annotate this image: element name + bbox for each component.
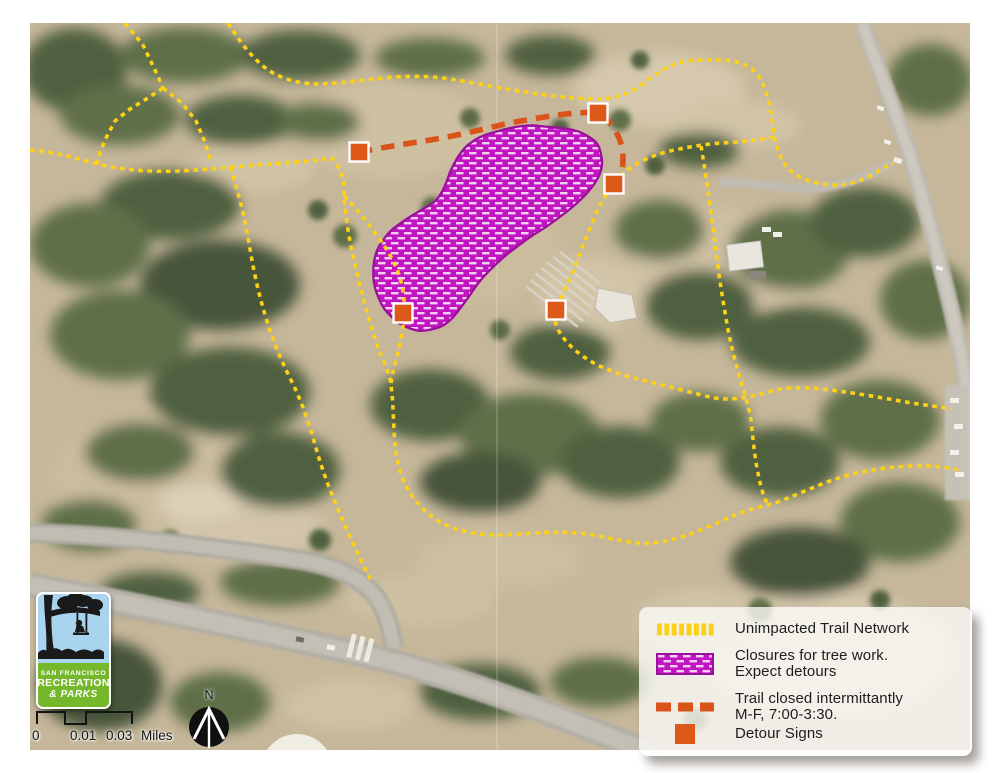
north-arrow-icon <box>187 702 231 750</box>
detour-sign-swatch <box>649 724 721 744</box>
logo-line2: RECREATION <box>37 678 110 689</box>
legend-item-detour-signs: Detour Signs <box>649 719 823 749</box>
detour-sign-marker <box>350 143 369 162</box>
legend-label: Trail closed intermittantly <box>735 691 903 707</box>
legend-panel: Unimpacted Trail Network Closures for tr… <box>639 607 972 756</box>
scale-label-start: 0 <box>32 728 40 743</box>
legend-label: Unimpacted Trail Network <box>735 621 909 637</box>
north-arrow: N <box>187 688 231 755</box>
legend-item-trail-network: Unimpacted Trail Network <box>649 615 909 643</box>
rec-parks-logo: SAN FRANCISCO RECREATION & PARKS <box>36 592 111 709</box>
scale-label-end: 0.03 <box>106 728 132 743</box>
logo-tree-icon <box>38 594 109 663</box>
legend-label: Closures for tree work. <box>735 648 888 664</box>
closed-trail-swatch <box>649 702 721 712</box>
logo-wordmark: SAN FRANCISCO RECREATION & PARKS <box>38 663 109 707</box>
closure-area-swatch <box>649 653 721 675</box>
detour-sign-marker <box>605 175 624 194</box>
scale-unit-label: Miles <box>141 728 173 743</box>
trail-network-swatch <box>649 623 721 636</box>
detour-sign-marker <box>394 304 413 323</box>
legend-label-line2: Expect detours <box>735 664 888 680</box>
scale-label-mid: 0.01 <box>70 728 96 743</box>
logo-line3: & PARKS <box>49 689 97 700</box>
map-page: SAN FRANCISCO RECREATION & PARKS 0 0.01 … <box>0 0 1000 773</box>
detour-sign-marker <box>589 104 608 123</box>
detour-sign-marker <box>547 301 566 320</box>
legend-label: Detour Signs <box>735 726 823 742</box>
scale-bar <box>36 707 140 729</box>
legend-item-closures: Closures for tree work. Expect detours <box>649 643 888 685</box>
north-label: N <box>187 688 231 702</box>
